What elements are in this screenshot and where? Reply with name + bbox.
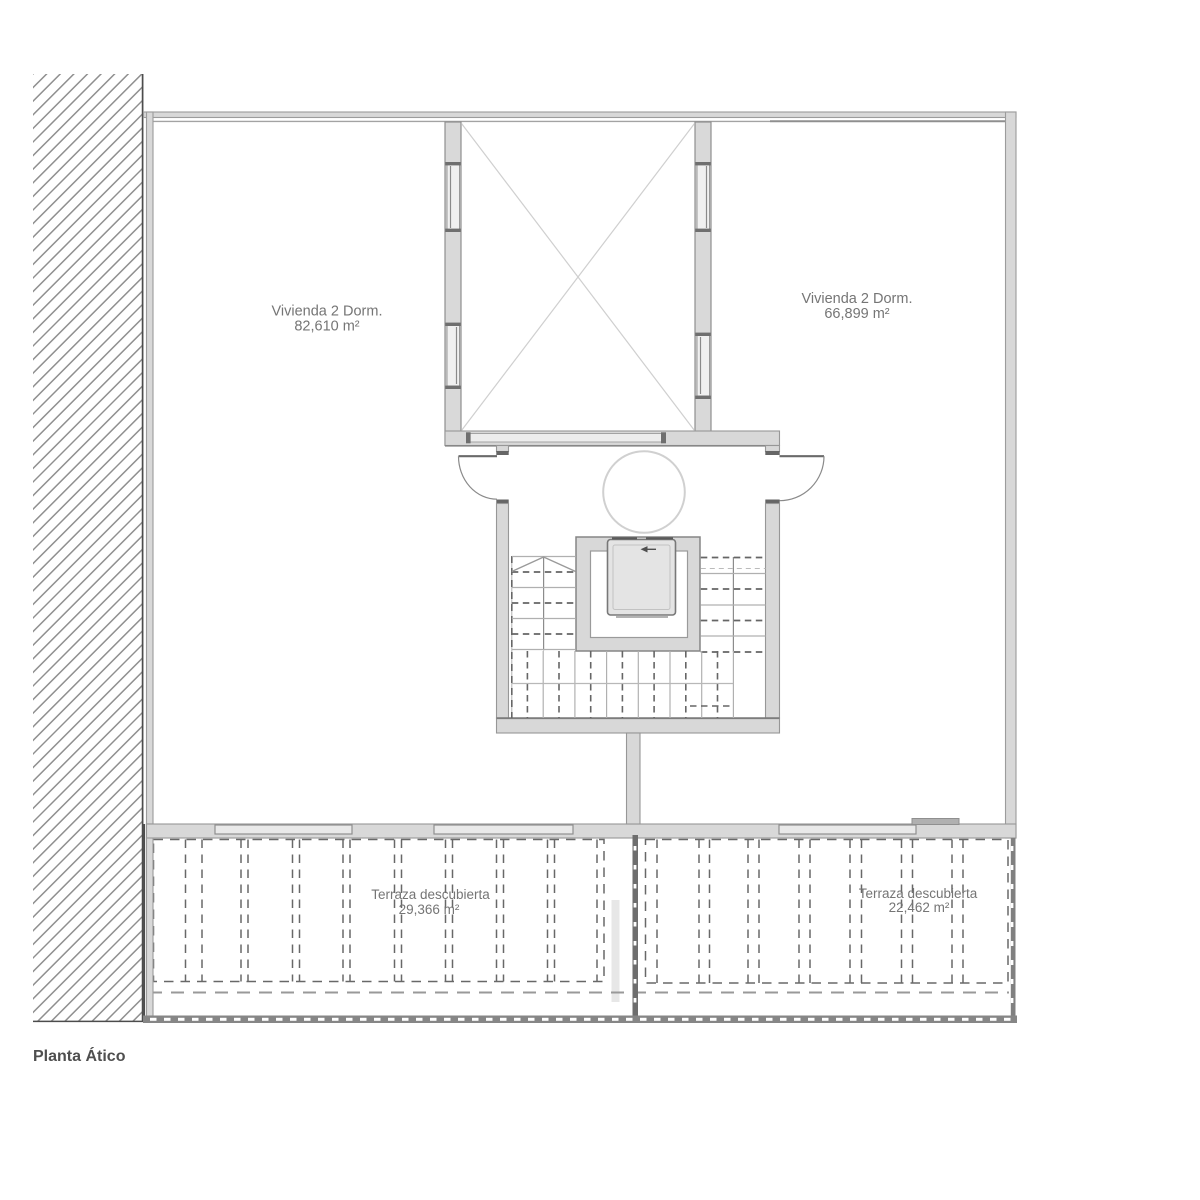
- svg-text:Vivienda 2 Dorm.: Vivienda 2 Dorm.: [802, 291, 913, 307]
- svg-text:29,366 m²: 29,366 m²: [399, 902, 460, 917]
- svg-text:82,610 m²: 82,610 m²: [294, 319, 359, 335]
- svg-text:66,899 m²: 66,899 m²: [824, 306, 889, 322]
- svg-text:Vivienda 2 Dorm.: Vivienda 2 Dorm.: [272, 304, 383, 320]
- svg-text:Terraza descubierta: Terraza descubierta: [859, 886, 978, 901]
- svg-text:Planta Ático: Planta Ático: [33, 1046, 126, 1065]
- svg-text:Terraza descubierta: Terraza descubierta: [371, 887, 490, 902]
- svg-text:22,462 m²: 22,462 m²: [889, 900, 950, 915]
